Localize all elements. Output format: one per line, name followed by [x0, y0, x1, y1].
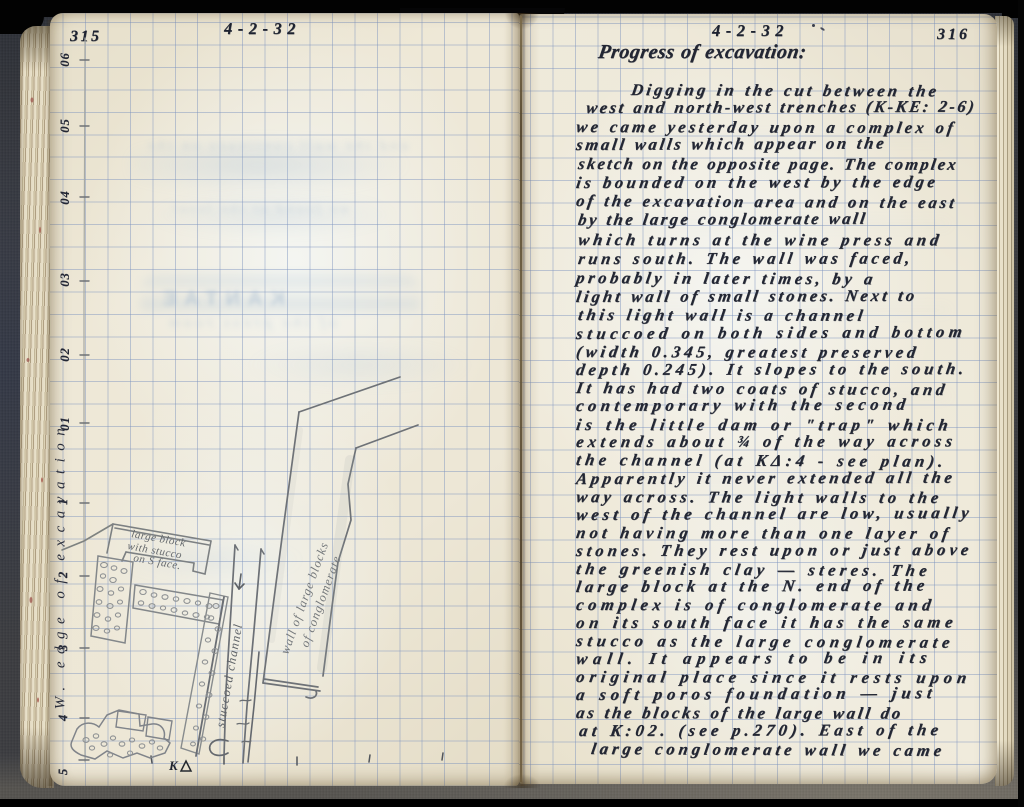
svg-text:stuccoed channel: stuccoed channel — [213, 622, 245, 728]
